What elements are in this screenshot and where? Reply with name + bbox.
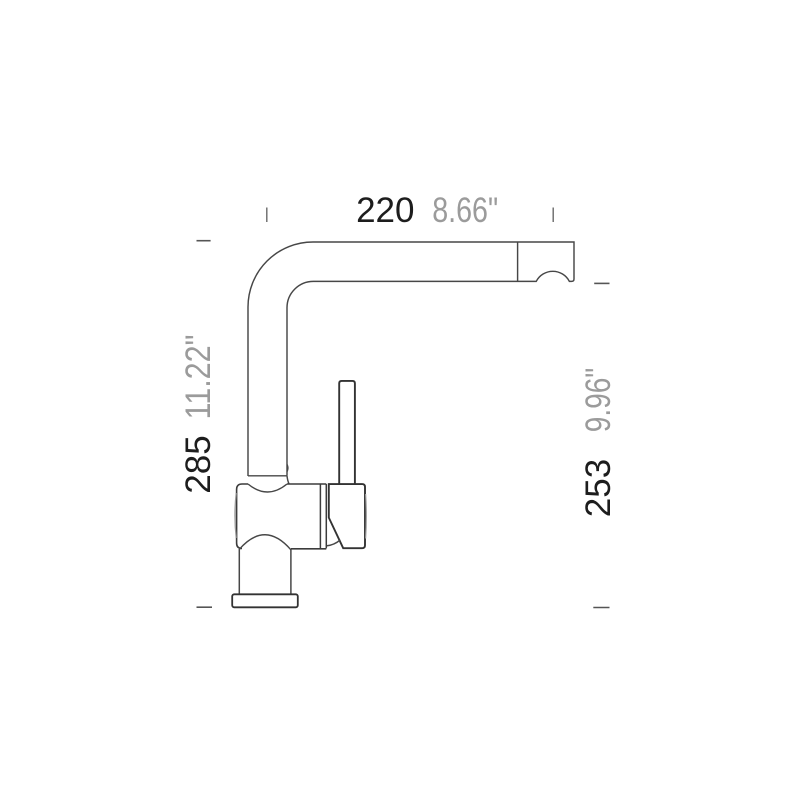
svg-text:8.66": 8.66": [432, 191, 498, 230]
svg-text:11.22": 11.22": [179, 335, 218, 420]
svg-text:9.96": 9.96": [579, 368, 618, 433]
svg-text:220: 220: [356, 191, 414, 230]
svg-text:253: 253: [579, 459, 618, 517]
svg-text:285: 285: [179, 435, 218, 493]
